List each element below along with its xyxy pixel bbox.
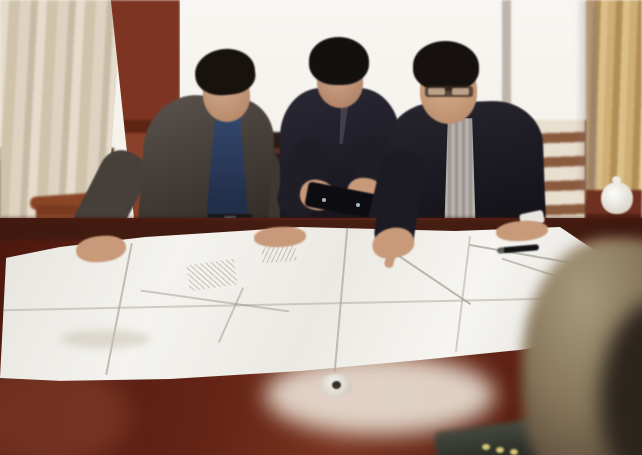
man-right-hair xyxy=(413,41,479,91)
glasses-lens-right xyxy=(452,88,469,95)
device-button xyxy=(482,444,490,450)
map-drawing-hatch xyxy=(261,245,296,264)
right-curtain-shadow xyxy=(576,0,596,192)
phone-glint xyxy=(322,198,326,202)
man-middle-hair xyxy=(309,37,369,85)
meeting-room-photo xyxy=(0,0,642,455)
cup-lid-hole xyxy=(332,381,341,389)
phone-glint xyxy=(356,203,360,207)
teapot-lid-knob xyxy=(612,176,621,184)
glasses-lens-left xyxy=(428,88,445,95)
device-button xyxy=(496,447,504,453)
teapot xyxy=(601,182,633,214)
map-drawing-smudge xyxy=(60,330,150,348)
device-button xyxy=(510,449,518,455)
